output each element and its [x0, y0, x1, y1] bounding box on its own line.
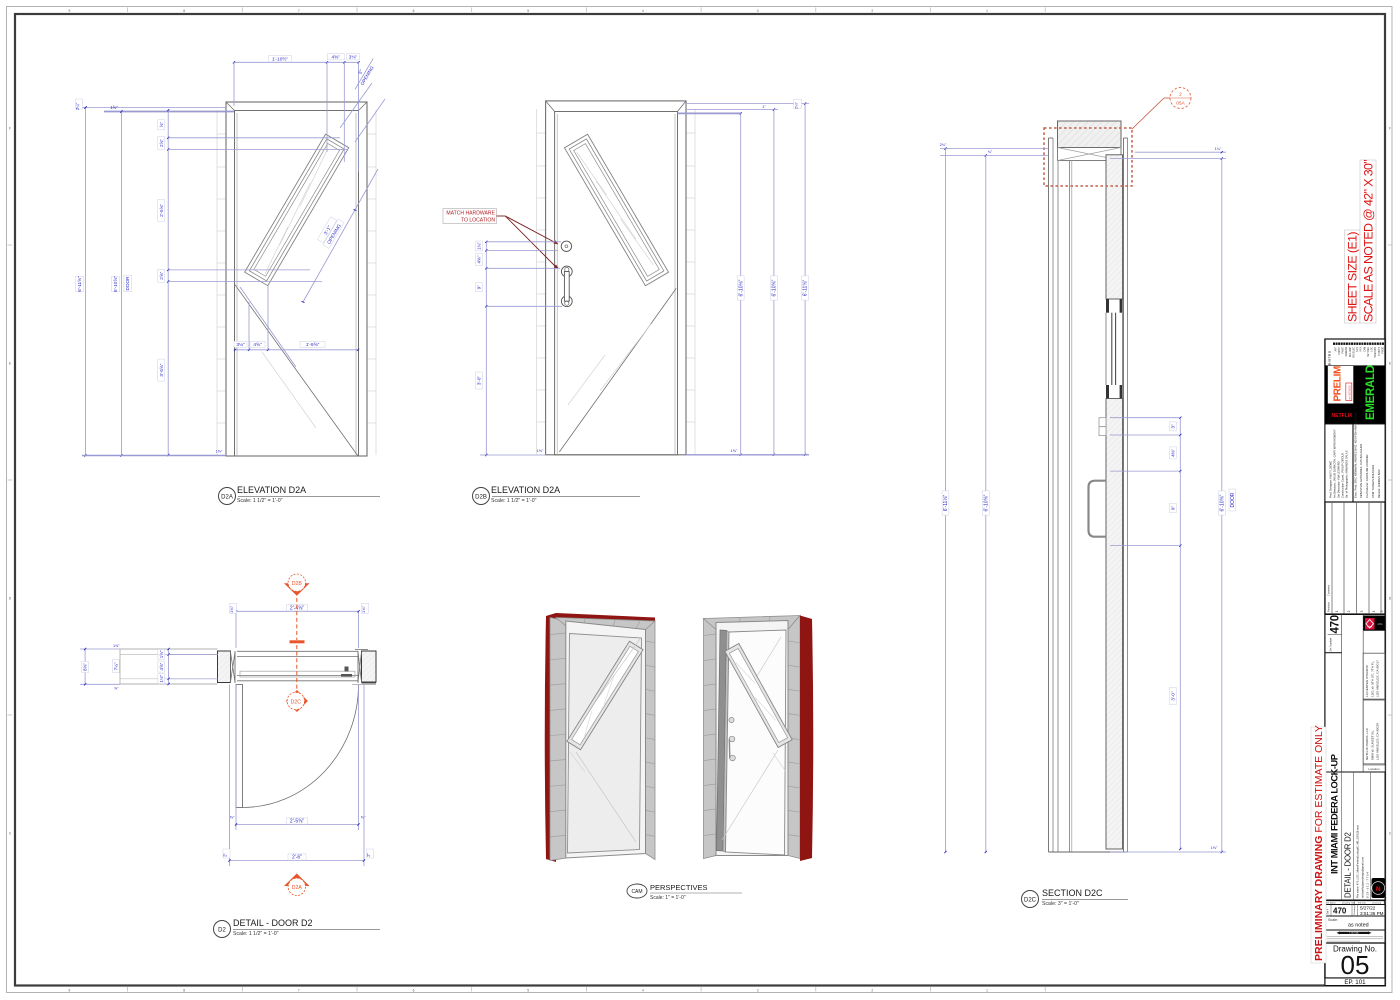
svg-text:DOOR: DOOR — [1230, 492, 1236, 507]
svg-text:DETAIL - DOOR D2: DETAIL - DOOR D2 — [1344, 832, 1353, 898]
svg-text:Co-Producer: CAROLINE CURRIER: Co-Producer: CAROLINE CURRIER — [1365, 454, 1369, 498]
svg-text:2¼": 2¼" — [794, 101, 799, 109]
svg-text:4: 4 — [642, 989, 644, 993]
svg-text:F: F — [9, 127, 11, 131]
svg-text:3'-0": 3'-0" — [1171, 691, 1176, 701]
svg-text:Revision: Revision — [1327, 601, 1331, 612]
svg-text:D2C: D2C — [1024, 897, 1037, 903]
svg-text:LA CENTER STUDIOS: LA CENTER STUDIOS — [1365, 665, 1369, 697]
svg-text:2¾": 2¾" — [940, 143, 947, 147]
svg-text:470: 470 — [1330, 615, 1342, 633]
svg-text:on 5/26/22: on 5/26/22 — [1347, 385, 1351, 400]
svg-text:Scale: 1 1/2" = 1'-0": Scale: 1 1/2" = 1'-0" — [491, 498, 537, 504]
svg-text:1'-9⅝": 1'-9⅝" — [306, 342, 320, 348]
svg-text:Set Decorator: KIM LEONARD: Set Decorator: KIM LEONARD — [1337, 461, 1341, 498]
svg-text:S-FX: S-FX — [1357, 346, 1359, 352]
svg-text:SET DEC: SET DEC — [1368, 346, 1370, 356]
svg-text:PRELIM: PRELIM — [1333, 366, 1344, 401]
svg-text:05: 05 — [1341, 950, 1370, 980]
svg-text:9: 9 — [69, 989, 71, 993]
svg-text:4⅝": 4⅝" — [159, 662, 164, 670]
svg-text:CONST: CONST — [1339, 346, 1341, 355]
svg-text:3: 3 — [757, 989, 759, 993]
svg-text:3⅛": 3⅛" — [349, 55, 358, 61]
svg-text:LOS ANGELES, CA 90017: LOS ANGELES, CA 90017 — [1376, 660, 1380, 697]
svg-text:ELEVATION D2A: ELEVATION D2A — [491, 485, 560, 495]
svg-text:DOOR: DOOR — [125, 276, 130, 291]
svg-text:3⅛": 3⅛" — [236, 342, 245, 348]
svg-text:Director: ANDRES BAIZ: Director: ANDRES BAIZ — [1377, 469, 1381, 498]
svg-text:1⅝": 1⅝" — [110, 105, 118, 110]
svg-text:4: 4 — [1372, 610, 1376, 612]
svg-text:⅝": ⅝" — [114, 687, 119, 691]
svg-text:E: E — [1389, 362, 1391, 366]
svg-text:Exec. Prod: ERIC NEWMAN, ANDR: Exec. Prod: ERIC NEWMAN, ANDRES BAIZ, NG… — [1354, 413, 1358, 498]
svg-text:LOS ANGELES, CA 90028: LOS ANGELES, CA 90028 — [1376, 723, 1380, 760]
svg-text:2'-5⅝": 2'-5⅝" — [159, 204, 164, 217]
svg-text:Scale: 1" = 1'-0": Scale: 1" = 1'-0" — [650, 895, 686, 901]
svg-text:1⅝": 1⅝" — [229, 605, 234, 613]
svg-text:2¼": 2¼" — [75, 102, 80, 110]
svg-text:NETFLIX PRODS. LLC: NETFLIX PRODS. LLC — [1365, 727, 1369, 760]
svg-text:5: 5 — [527, 989, 529, 993]
svg-text:PROD: PROD — [1382, 346, 1384, 353]
svg-text:1⅝": 1⅝" — [159, 650, 164, 658]
svg-text:2": 2" — [366, 853, 371, 857]
svg-text:PAINT: PAINT — [1342, 346, 1345, 353]
svg-text:SHEET SIZE (E1): SHEET SIZE (E1) — [1346, 232, 1360, 322]
svg-text:D2: D2 — [218, 927, 226, 933]
svg-text:SECTION D2C: SECTION D2C — [1042, 888, 1103, 898]
svg-text:1'-10½": 1'-10½" — [272, 56, 289, 63]
svg-text:Scale: 1 1/2" = 1'-0": Scale: 1 1/2" = 1'-0" — [233, 931, 279, 937]
svg-text:¾": ¾" — [988, 150, 993, 154]
svg-text:RIG GRIP: RIG GRIP — [1350, 346, 1352, 357]
svg-text:NETFLIX: NETFLIX — [1332, 413, 1354, 419]
svg-text:LOC: LOC — [1372, 346, 1374, 351]
svg-text:2: 2 — [871, 9, 873, 13]
svg-text:EP. 101: EP. 101 — [1344, 979, 1366, 986]
svg-text:4⅜": 4⅜" — [477, 255, 482, 263]
svg-text:5/27/22: 5/27/22 — [1360, 906, 1376, 911]
svg-text:D I S T R O: D I S T R O — [1328, 351, 1332, 365]
svg-text:Construction Coord.: PHILIP G: Construction Coord.: PHILIP GIROUX — [1341, 453, 1345, 498]
svg-text:3: 3 — [1360, 610, 1364, 612]
svg-text:Scale: 3" = 1'-0": Scale: 3" = 1'-0" — [1042, 901, 1079, 907]
svg-text:SEBASTIAN GUTIERREZ, LUIS BALA: SEBASTIAN GUTIERREZ, LUIS BALAGUER — [1359, 444, 1363, 498]
svg-text:6: 6 — [413, 9, 415, 13]
svg-text:Location: Location — [1368, 767, 1380, 771]
svg-text:6'-10⅝": 6'-10⅝" — [983, 494, 989, 511]
svg-text:6'-10⅛": 6'-10⅛" — [738, 279, 744, 296]
svg-text:DETAIL - DOOR D2: DETAIL - DOOR D2 — [233, 918, 313, 928]
svg-text:V-FX: V-FX — [1361, 346, 1363, 352]
svg-text:D2C: D2C — [291, 699, 302, 705]
svg-text:1⅝": 1⅝" — [361, 605, 366, 613]
svg-text:as noted: as noted — [1348, 923, 1369, 929]
svg-text:E: E — [9, 362, 11, 366]
svg-text:2'-6": 2'-6" — [292, 855, 302, 861]
svg-text:5: 5 — [1380, 610, 1384, 612]
svg-text:PRELIMINARY DRAWING FOR ESTIMA: PRELIMINARY DRAWING FOR ESTIMATE ONLY — [1313, 725, 1325, 961]
svg-text:1: 1 — [986, 989, 988, 993]
svg-text:TO LOCATION: TO LOCATION — [461, 218, 495, 224]
svg-text:D2B: D2B — [292, 581, 303, 587]
svg-text:3'-0": 3'-0" — [477, 376, 482, 386]
svg-text:CAM: CAM — [1363, 347, 1366, 352]
svg-text:9": 9" — [477, 285, 482, 290]
svg-text:STUNTS: STUNTS — [1379, 346, 1381, 356]
svg-text:8 1 8 - 6 1 2 - 7 7 6 4: 8 1 8 - 6 1 2 - 7 7 6 4 — [1366, 872, 1370, 898]
svg-text:1⅝": 1⅝" — [731, 449, 738, 453]
svg-text:⅝": ⅝" — [159, 122, 164, 128]
svg-text:Dir. of Photography: ARMANDO: Dir. of Photography: ARMANDO SALAS — [1345, 450, 1349, 498]
svg-text:1" ACTUAL: 1" ACTUAL — [1349, 932, 1359, 935]
svg-text:2⅝": 2⅝" — [159, 139, 164, 147]
svg-text:9: 9 — [69, 9, 71, 13]
svg-text:⅝": ⅝" — [230, 815, 235, 820]
svg-text:7: 7 — [298, 9, 300, 13]
svg-text:1: 1 — [986, 9, 988, 13]
svg-text:6'-11⅝": 6'-11⅝" — [77, 276, 82, 292]
svg-text:PERSPECTIVES: PERSPECTIVES — [650, 883, 708, 892]
svg-text:Comment: Comment — [1327, 584, 1331, 596]
svg-text:Set Number: Set Number — [1329, 638, 1333, 652]
svg-text:INT MIAMI FEDERA LOCK-UP: INT MIAMI FEDERA LOCK-UP — [1330, 754, 1340, 874]
svg-text:4⅜": 4⅜" — [1171, 449, 1176, 457]
svg-text:4⅝": 4⅝" — [253, 342, 262, 348]
svg-text:1: 1 — [1335, 610, 1339, 612]
svg-text:2'-5⅝": 2'-5⅝" — [290, 819, 304, 825]
svg-text:4: 4 — [642, 9, 644, 13]
svg-text:1⅝": 1⅝" — [1211, 846, 1218, 850]
svg-text:6'-10⅝": 6'-10⅝" — [113, 276, 118, 292]
svg-text:EMERALD: EMERALD — [1365, 365, 1377, 420]
svg-text:UPM: THOMAS BOUCHER: UPM: THOMAS BOUCHER — [1371, 465, 1375, 498]
svg-text:1¼": 1¼" — [1215, 147, 1222, 151]
svg-text:D2A: D2A — [221, 494, 233, 500]
svg-text:3: 3 — [757, 9, 759, 13]
svg-text:Scale: 1 1/2" = 1'-0": Scale: 1 1/2" = 1'-0" — [237, 498, 283, 504]
svg-text:MATCH HARDWARE: MATCH HARDWARE — [446, 211, 495, 217]
svg-text:SCALE AS NOTED @ 42" X 30": SCALE AS NOTED @ 42" X 30" — [1362, 160, 1376, 322]
svg-text:RIG ELEC: RIG ELEC — [1353, 346, 1355, 357]
svg-text:7¼": 7¼" — [113, 662, 118, 670]
svg-text:6: 6 — [413, 989, 415, 993]
svg-text:File name: 470_LOC_MiamiFeder: File name: 470_LOC_MiamiFederalLockupIE_… — [1356, 824, 1360, 898]
svg-text:1⅝": 1⅝" — [537, 449, 544, 453]
svg-text:6'-10⅝": 6'-10⅝" — [772, 279, 778, 296]
svg-text:Drawing Date: Drawing Date — [1353, 900, 1356, 914]
svg-text:1⅛": 1⅛" — [159, 675, 164, 683]
svg-text:ADG: ADG — [1378, 623, 1383, 626]
svg-text:Art Directors: JAKUB DURKOTH,: Art Directors: JAKUB DURKOTH, GARY WARSH… — [1333, 429, 1337, 498]
svg-text:8: 8 — [183, 9, 185, 13]
svg-text:N: N — [1376, 886, 1381, 893]
svg-text:7: 7 — [298, 989, 300, 993]
svg-text:3:51:36 PM: 3:51:36 PM — [1360, 911, 1384, 916]
svg-text:4⅝": 4⅝" — [332, 55, 341, 61]
svg-text:D2A: D2A — [292, 885, 303, 891]
svg-text:6'-11⅛": 6'-11⅛" — [943, 495, 949, 512]
svg-text:Scale:: Scale: — [1328, 918, 1338, 922]
svg-text:michaelhudgensdesign@gmail.com: michaelhudgensdesign@gmail.com — [1361, 857, 1365, 898]
svg-text:Set #: Set # — [1327, 908, 1330, 914]
svg-text:1⅝": 1⅝" — [113, 644, 120, 648]
svg-text:2⅝": 2⅝" — [159, 271, 164, 279]
svg-text:2: 2 — [1179, 92, 1182, 98]
svg-text:8⅝": 8⅝" — [83, 663, 88, 671]
svg-text:3": 3" — [1171, 424, 1176, 429]
svg-text:GREENS: GREENS — [1346, 346, 1348, 356]
svg-text:05A: 05A — [1176, 101, 1185, 107]
svg-text:1¾": 1¾" — [477, 242, 482, 250]
svg-text:TRANSPO: TRANSPO — [1374, 347, 1377, 358]
svg-text:D2B: D2B — [475, 494, 487, 500]
svg-text:3'-5⅝": 3'-5⅝" — [159, 363, 164, 376]
svg-text:2: 2 — [1347, 610, 1351, 612]
svg-text:8: 8 — [183, 989, 185, 993]
svg-text:Prod. Designer: KNUT LOEWE: Prod. Designer: KNUT LOEWE — [1329, 461, 1333, 498]
svg-text:9": 9" — [1171, 506, 1176, 511]
svg-text:ART: ART — [1334, 346, 1337, 351]
svg-text:1⅝": 1⅝" — [216, 450, 223, 454]
svg-text:6'-11⅝": 6'-11⅝" — [803, 280, 809, 297]
svg-text:1201 W. 5TH ST., 7TH FL.: 1201 W. 5TH ST., 7TH FL. — [1370, 661, 1374, 697]
svg-text:6'-10⅝": 6'-10⅝" — [1219, 494, 1225, 511]
svg-text:F: F — [1389, 127, 1391, 131]
svg-text:ELEVATION D2A: ELEVATION D2A — [237, 485, 306, 495]
svg-text:5: 5 — [527, 9, 529, 13]
svg-text:5808 W. SUNSET BL.: 5808 W. SUNSET BL. — [1370, 730, 1374, 760]
svg-text:CAM: CAM — [631, 889, 642, 895]
svg-text:2": 2" — [223, 853, 228, 857]
svg-text:⅝": ⅝" — [361, 815, 366, 820]
svg-text:470: 470 — [1333, 907, 1347, 916]
svg-text:2: 2 — [871, 989, 873, 993]
